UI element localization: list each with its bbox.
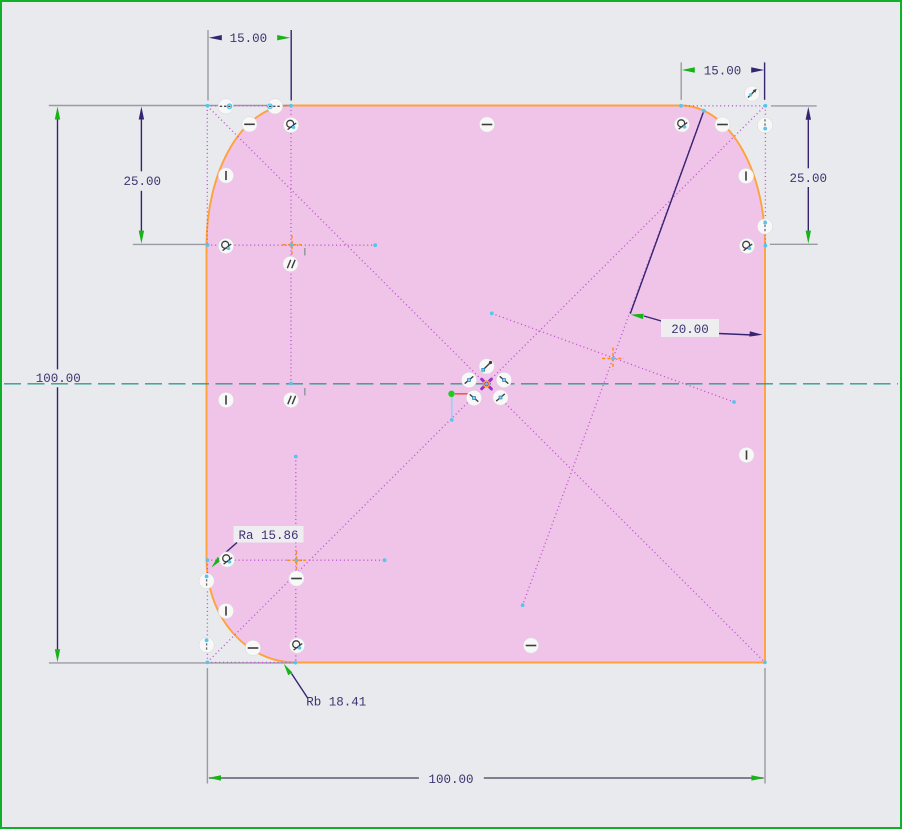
svg-text:25.00: 25.00 <box>790 172 828 186</box>
svg-text:Rb 18.41: Rb 18.41 <box>306 696 366 710</box>
svg-text:20.00: 20.00 <box>671 323 709 337</box>
svg-text:15.00: 15.00 <box>704 64 742 78</box>
svg-text:100.00: 100.00 <box>428 773 473 787</box>
svg-text:25.00: 25.00 <box>124 175 162 189</box>
svg-text:Ra 15.86: Ra 15.86 <box>238 529 298 543</box>
svg-text:15.00: 15.00 <box>230 32 268 46</box>
svg-text:100.00: 100.00 <box>36 372 81 386</box>
